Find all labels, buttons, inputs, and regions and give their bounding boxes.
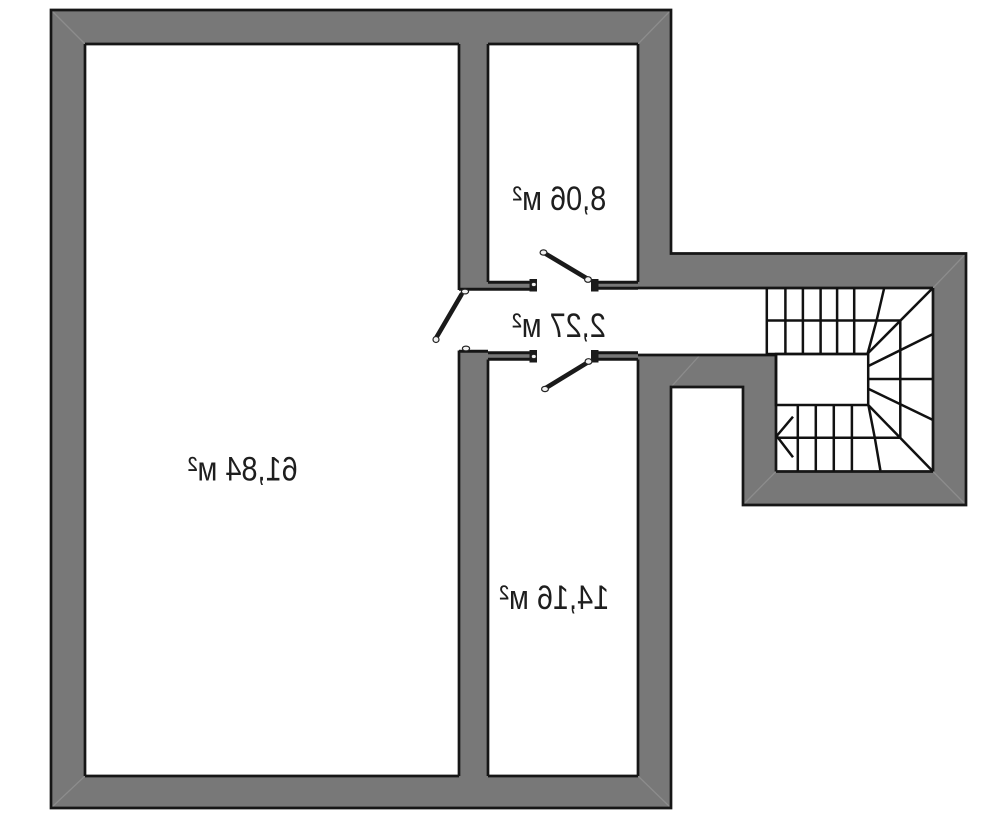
svg-text:8,06 м²: 8,06 м²	[513, 179, 607, 218]
svg-text:2,27 м²: 2,27 м²	[512, 306, 606, 345]
svg-text:14,16 м²: 14,16 м²	[499, 578, 609, 617]
svg-text:61,84 м²: 61,84 м²	[188, 449, 298, 488]
